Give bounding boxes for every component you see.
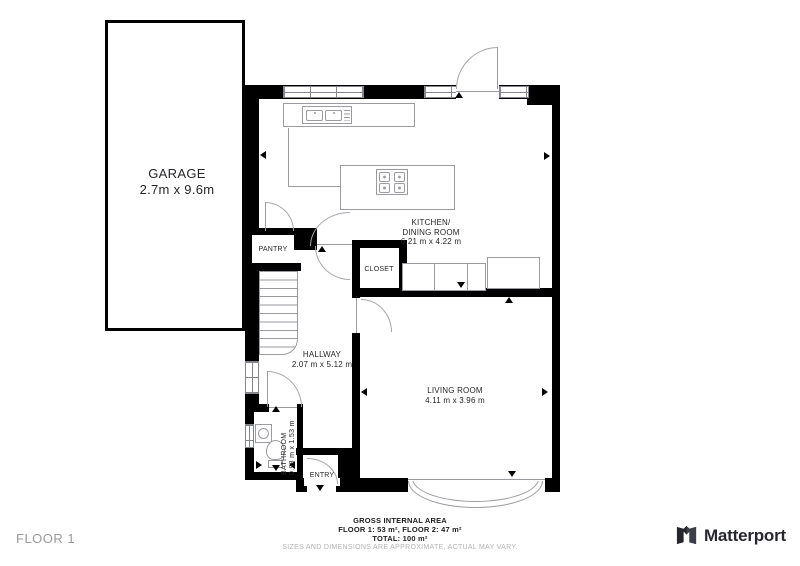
- hallway-label: HALLWAY 2.07 m x 5.12 m: [292, 350, 352, 369]
- dimension-arrow: [272, 465, 280, 471]
- wall: [296, 448, 352, 455]
- living-room-name: LIVING ROOM: [425, 386, 485, 396]
- area-title: GROSS INTERNAL AREA: [282, 516, 517, 525]
- kitchen-dims: 6.21 m x 4.22 m: [401, 237, 461, 247]
- disclaimer: SIZES AND DIMENSIONS ARE APPROXIMATE, AC…: [282, 543, 517, 552]
- bathroom-dims: 0.98 m x 1.53 m: [289, 420, 296, 475]
- wall: [545, 478, 560, 492]
- door-threshold: [356, 298, 357, 333]
- matterport-logo-icon: [675, 524, 698, 547]
- wall: [340, 478, 408, 492]
- living-room-label: LIVING ROOM 4.11 m x 3.96 m: [425, 386, 485, 405]
- wall: [245, 263, 301, 271]
- living-room-dims: 4.11 m x 3.96 m: [425, 396, 485, 406]
- refrigerator: [487, 257, 540, 289]
- dimension-arrow: [455, 92, 463, 98]
- door-leaf: [267, 371, 268, 407]
- dimension-arrow: [260, 151, 266, 159]
- window: [283, 86, 364, 98]
- kitchen-name-line2: DINING ROOM: [401, 228, 461, 238]
- floorplan-canvas: GARAGE 2.7m x 9.6m: [0, 0, 800, 566]
- matterport-wordmark: Matterport: [704, 526, 786, 546]
- stairs: [259, 271, 298, 355]
- kitchen-sink: [302, 106, 352, 124]
- entry-label: ENTRY: [310, 472, 335, 480]
- door-leaf: [265, 202, 266, 231]
- window: [424, 86, 457, 98]
- wall: [297, 404, 303, 480]
- garage-name: GARAGE: [140, 166, 215, 182]
- dimension-arrow: [316, 485, 324, 491]
- area-floors: FLOOR 1: 53 m², FLOOR 2: 47 m²: [282, 525, 517, 534]
- kitchen-dining-label: KITCHEN/ DINING ROOM 6.21 m x 4.22 m: [401, 218, 461, 247]
- dimension-arrow: [542, 388, 548, 396]
- door-arc-pantry: [265, 202, 294, 231]
- base-cabinets: [402, 263, 486, 291]
- floorplan-page: { "plan": { "garage": {"name": "GARAGE",…: [0, 0, 800, 566]
- hallway-dims: 2.07 m x 5.12 m: [292, 360, 352, 370]
- dimension-arrow: [508, 471, 516, 477]
- bay-window: [408, 481, 545, 512]
- door-leaf: [497, 47, 498, 89]
- hallway-name: HALLWAY: [292, 350, 352, 360]
- entry-threshold-tab: [302, 486, 307, 492]
- dimension-arrow: [505, 297, 513, 303]
- bathroom-label: BATHROOM 0.98 m x 1.53 m: [281, 403, 297, 475]
- dimension-arrow: [318, 246, 326, 252]
- closet-label: CLOSET: [364, 266, 393, 274]
- kitchen-area-line: [288, 186, 340, 187]
- matterport-logo: Matterport: [675, 524, 786, 547]
- stove: [376, 169, 408, 195]
- window: [245, 424, 254, 448]
- dimension-arrow: [361, 388, 367, 396]
- door-arc-entry: [307, 458, 338, 484]
- area-summary: GROSS INTERNAL AREA FLOOR 1: 53 m², FLOO…: [282, 516, 517, 552]
- wall: [338, 455, 352, 478]
- garage-label: GARAGE 2.7m x 9.6m: [140, 166, 215, 198]
- door-arc-living-room: [361, 299, 392, 332]
- door-arc-bathroom: [267, 371, 302, 407]
- wall: [352, 333, 360, 478]
- dimension-arrow: [544, 152, 550, 160]
- kitchen-name-line1: KITCHEN/: [401, 218, 461, 228]
- door-arc-kitchen: [310, 212, 350, 246]
- floor-label: FLOOR 1: [16, 531, 75, 546]
- dimension-arrow: [272, 406, 280, 412]
- window: [245, 361, 259, 394]
- dimension-arrow: [256, 461, 262, 469]
- window: [499, 86, 529, 98]
- door-threshold: [317, 244, 352, 245]
- bay-window-line: [408, 479, 545, 480]
- garage-dims: 2.7m x 9.6m: [140, 182, 215, 198]
- dimension-arrow: [457, 282, 465, 288]
- bathroom-name: BATHROOM: [281, 433, 288, 475]
- area-total: TOTAL: 100 m²: [282, 534, 517, 543]
- door-arc-front-exterior: [456, 47, 498, 89]
- bathroom-sink: [255, 424, 272, 443]
- kitchen-area-line: [288, 128, 289, 186]
- wall: [245, 85, 259, 228]
- entry-threshold-tab: [336, 486, 341, 492]
- pantry-label: PANTRY: [259, 246, 288, 254]
